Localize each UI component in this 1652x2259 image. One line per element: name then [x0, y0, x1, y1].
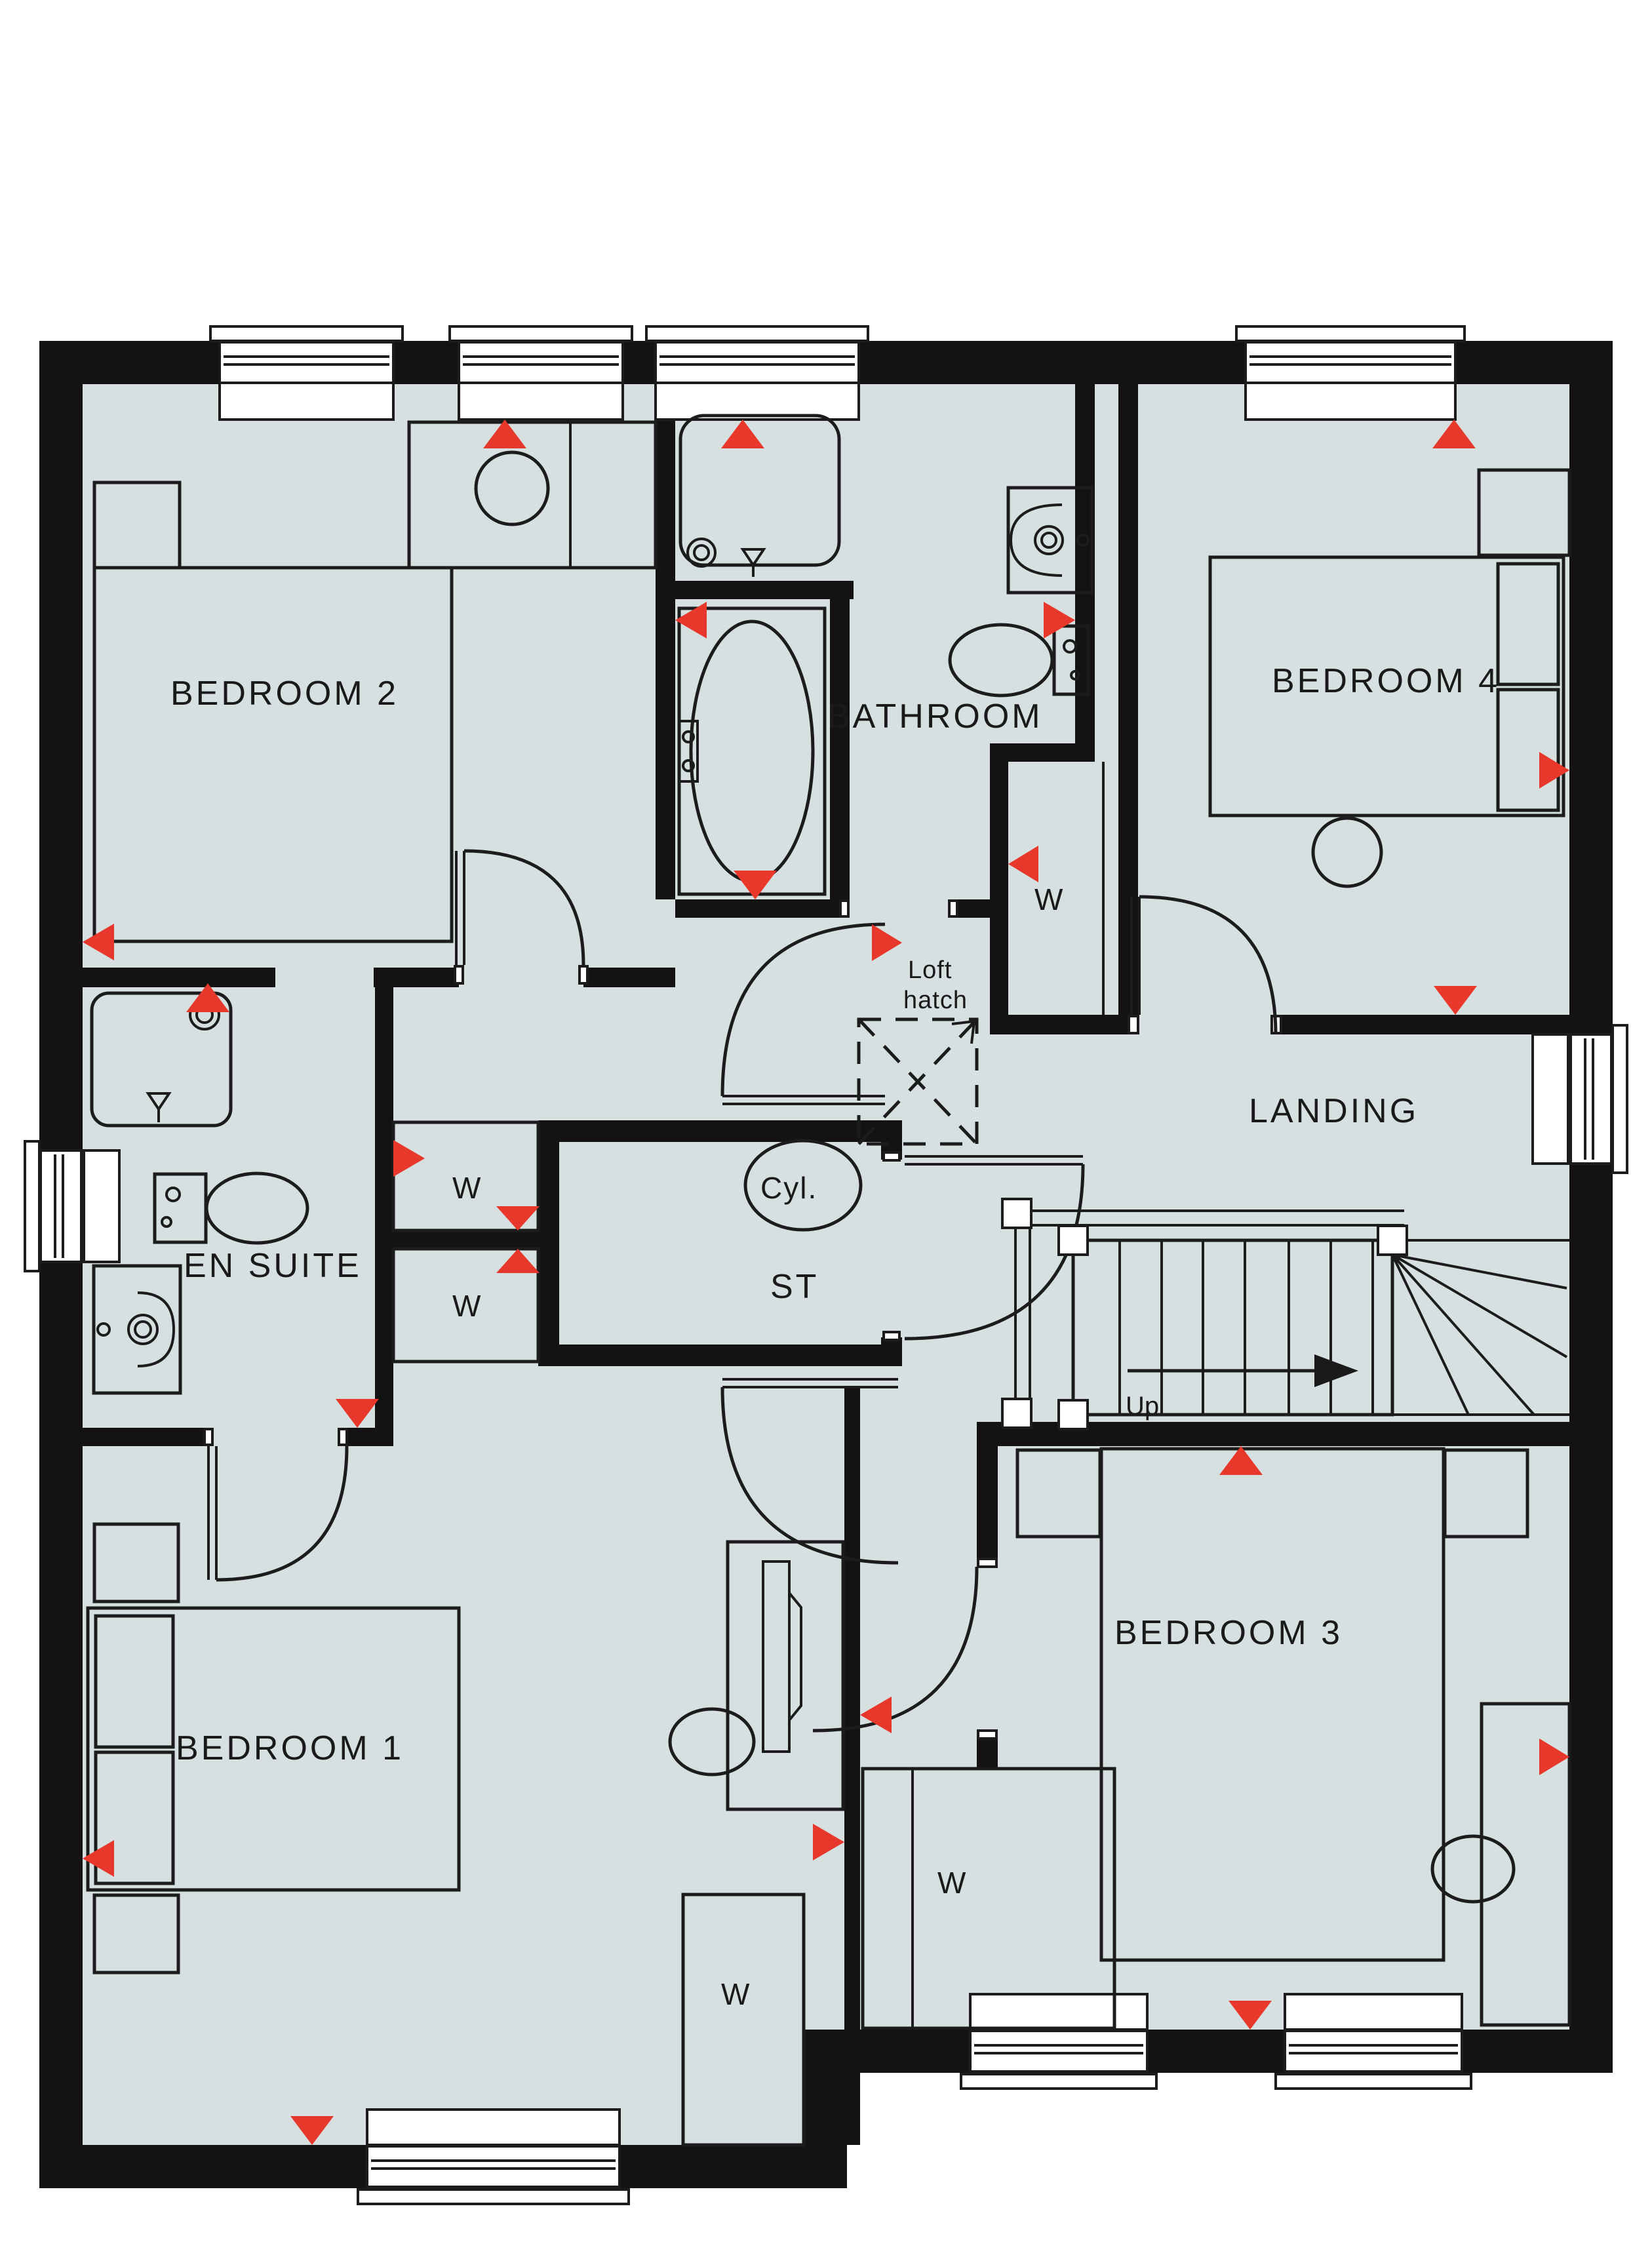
wardrobe-label-1: W [452, 1171, 482, 1205]
window-bedroom3-right [1276, 1994, 1471, 2089]
window-landing [1533, 1025, 1627, 1173]
window-bedroom2-left [210, 326, 403, 420]
window-bedroom1 [358, 2110, 629, 2204]
landing-label: LANDING [1249, 1092, 1419, 1130]
bedroom3-label: BEDROOM 3 [1114, 1614, 1343, 1652]
stairs-up-label: Up [1126, 1392, 1159, 1421]
window-ensuite [25, 1141, 119, 1271]
ensuite-label: EN SUITE [184, 1247, 362, 1285]
floor-plan-page: Up Loft hatch BEDROOM 2 [0, 0, 1652, 2259]
bathroom-label: BATHROOM [827, 697, 1043, 736]
loft-hatch-label-line1: Loft [908, 956, 952, 984]
floor-plan-svg: Up Loft hatch BEDROOM 2 [0, 0, 1652, 2259]
bedroom4-label: BEDROOM 4 [1272, 662, 1500, 700]
bedroom1-label: BEDROOM 1 [176, 1729, 404, 1767]
window-bedroom2-right [450, 326, 632, 420]
window-bathroom [646, 326, 868, 420]
window-bedroom4 [1236, 326, 1465, 420]
loft-hatch-label-line2: hatch [903, 987, 968, 1014]
cylinder-label: Cyl. [760, 1171, 817, 1205]
bedroom2-label: BEDROOM 2 [170, 675, 399, 713]
store-label: ST [770, 1268, 819, 1306]
window-bedroom3-left [961, 1994, 1156, 2089]
wardrobe-label-2: W [452, 1289, 482, 1323]
wardrobe-label-5: W [937, 1866, 967, 1900]
wardrobe-label-3: W [1034, 882, 1064, 916]
wardrobe-label-4: W [721, 1977, 751, 2011]
